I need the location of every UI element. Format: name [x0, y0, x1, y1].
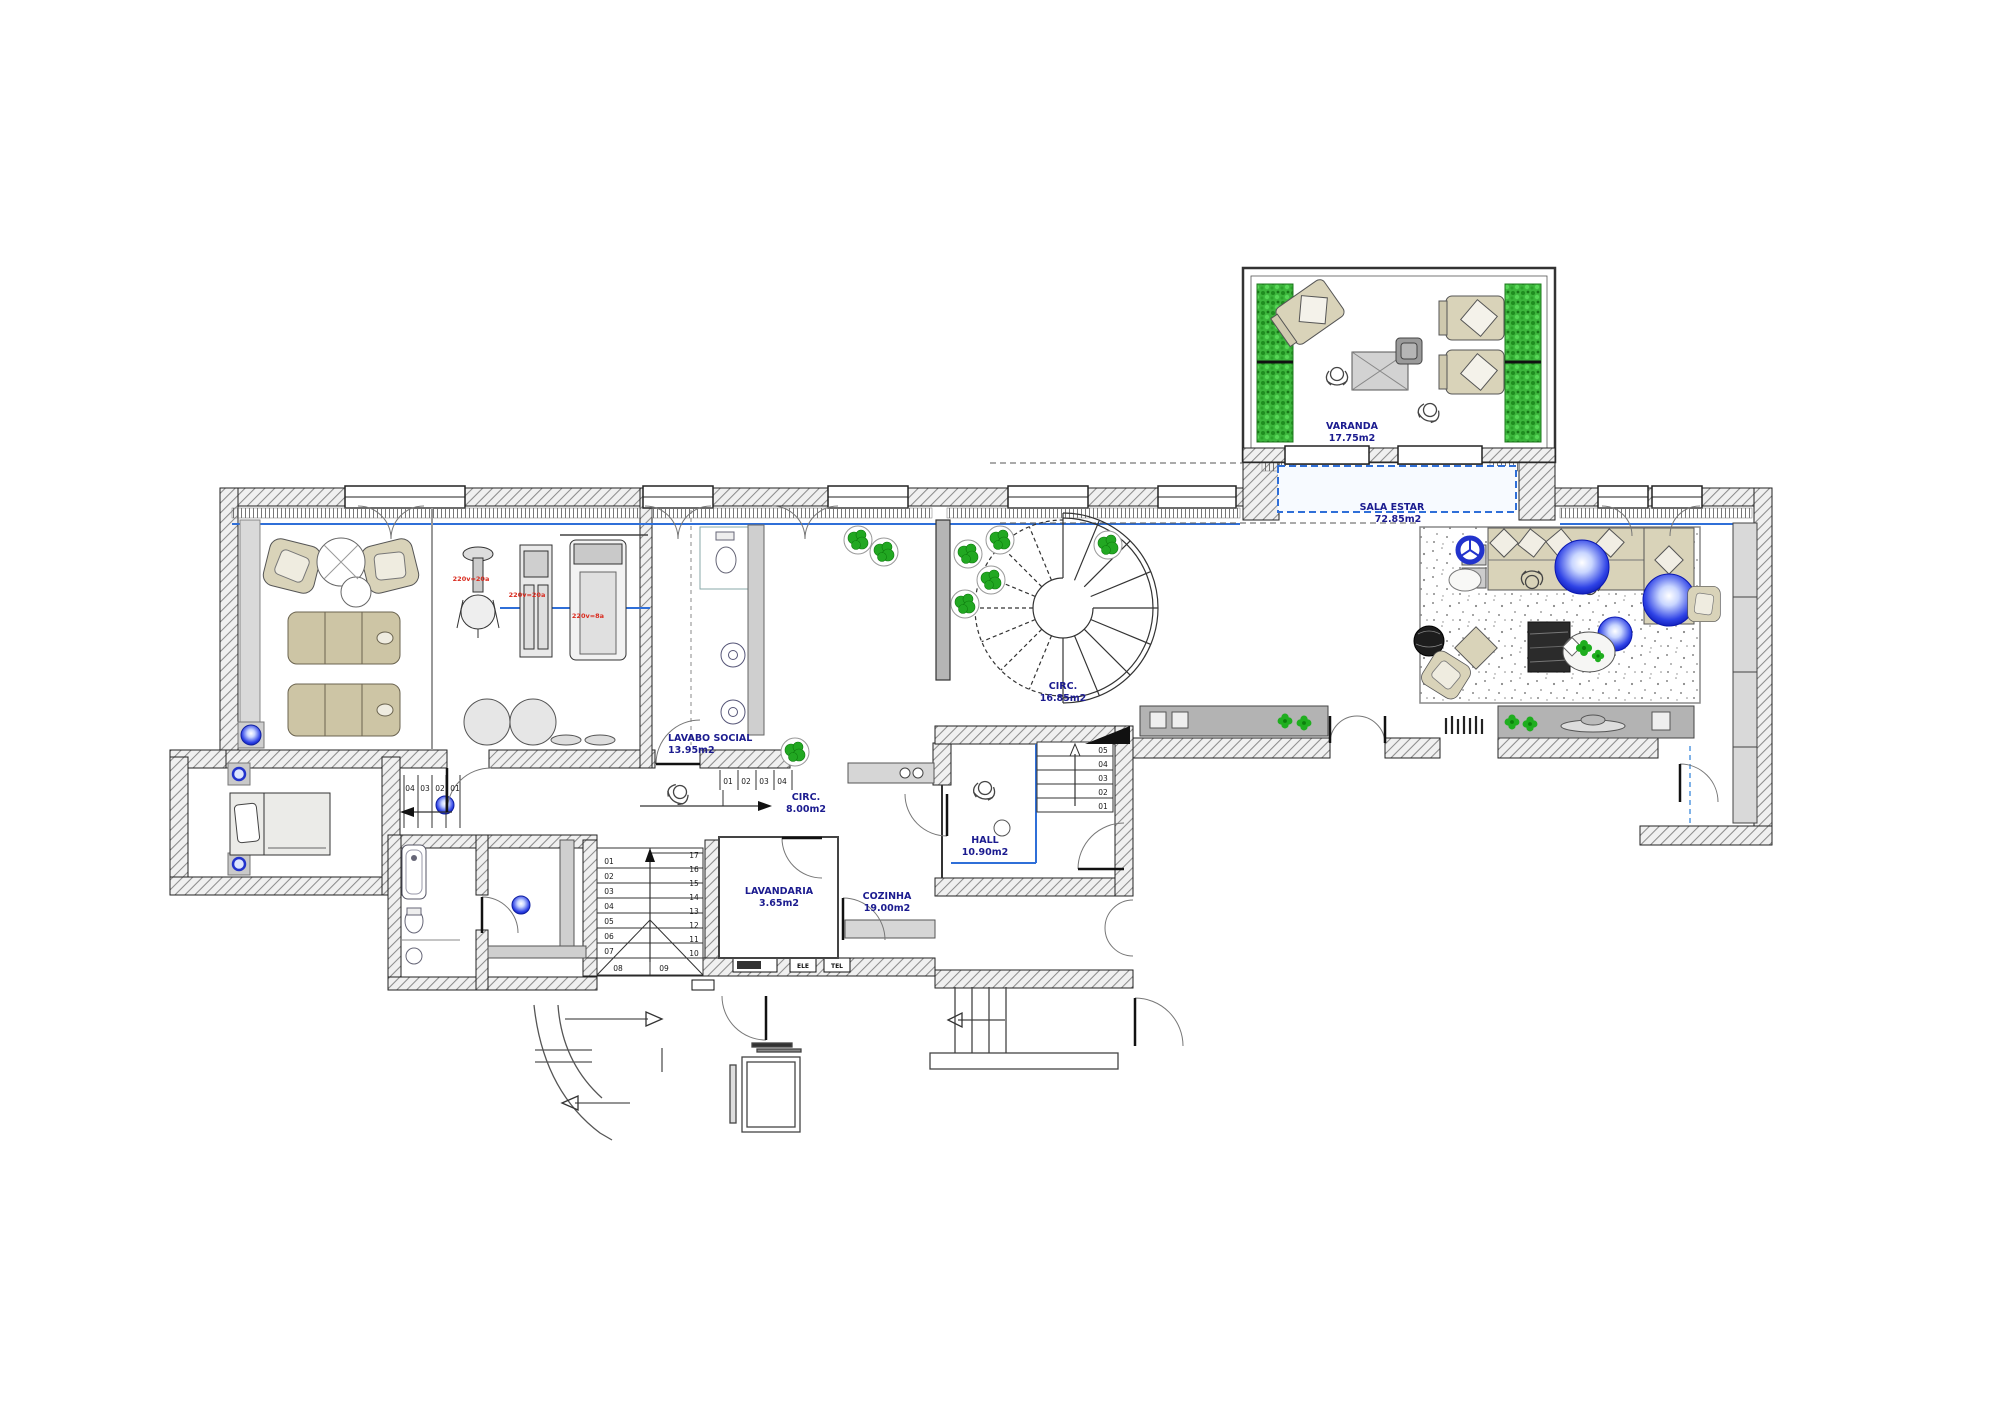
lavabo-social	[691, 510, 764, 745]
floor-plan-canvas: VARANDA 17.75m2 SALA ESTAR 72.85m2 LAVAB…	[0, 0, 2000, 1414]
label-treadmill-power: 220v=8a	[572, 612, 604, 620]
round-tables	[317, 538, 371, 607]
label-varanda-area: 17.75m2	[1329, 433, 1376, 444]
sink-icon	[721, 700, 745, 724]
stair-num: 02	[604, 872, 614, 881]
label-lavabo-area: 13.95m2	[668, 745, 715, 756]
stair-num: 07	[604, 947, 614, 956]
stair-num: 02	[1098, 788, 1108, 797]
entry-cabinet	[730, 1043, 801, 1132]
label-circ-escada-area: 16.85m2	[1040, 693, 1087, 704]
label-circ-escada: CIRC.	[1049, 681, 1077, 692]
massage-table	[288, 684, 400, 736]
stair-num: 01	[604, 857, 614, 866]
dumbbell-rack	[551, 735, 615, 745]
corridor-steps	[640, 770, 792, 811]
stair-num: 04	[604, 902, 614, 911]
blue-sphere-lamp	[241, 725, 261, 745]
toilet-icon	[405, 908, 423, 933]
exterior-features	[534, 987, 1118, 1140]
closet-area	[436, 796, 586, 958]
utility-box-label: ELE	[797, 963, 809, 970]
stair-num: 03	[1098, 774, 1108, 783]
stair-num: 12	[689, 921, 699, 930]
weight-station	[520, 545, 552, 657]
label-sala-estar: SALA ESTAR	[1360, 502, 1425, 513]
stair-num: 13	[689, 907, 699, 916]
utility-box-label: TEL	[831, 963, 843, 970]
massage-table	[288, 612, 400, 664]
label-hall: HALL	[971, 835, 998, 846]
massage-room	[238, 508, 432, 750]
label-cozinha-area: 19.00m2	[864, 903, 911, 914]
veranda-lounger-2	[1439, 296, 1504, 340]
stair-num: 03	[604, 887, 614, 896]
label-cozinha: COZINHA	[863, 891, 912, 902]
label-hall-area: 10.90m2	[962, 847, 1009, 858]
bedroom	[228, 763, 330, 875]
sink-icon	[721, 643, 745, 667]
veranda-lounger-3	[1439, 350, 1504, 394]
label-bike-power: 220v=20a	[453, 575, 490, 583]
stair-num: 03	[759, 777, 769, 786]
gym	[457, 535, 648, 745]
single-bed	[230, 793, 330, 855]
stair-num: 15	[689, 879, 699, 888]
ceiling-fan	[1458, 538, 1482, 562]
bathroom	[402, 845, 460, 964]
stair-num: 01	[723, 777, 733, 786]
stair-num: 08	[613, 964, 623, 973]
label-circ-corredor-area: 8.00m2	[786, 804, 826, 815]
stair-num: 10	[689, 949, 699, 958]
plant-table	[1563, 632, 1615, 672]
treadmill	[570, 540, 626, 660]
ramp-arrow	[646, 1012, 662, 1026]
exercise-bike	[457, 547, 499, 638]
stair-wall	[936, 520, 950, 680]
stair-num: 17	[689, 851, 699, 860]
stair-num: 03	[420, 784, 430, 793]
gym-ball	[510, 699, 556, 745]
stair-num: 02	[435, 784, 445, 793]
stair-num: 16	[689, 865, 699, 874]
person-icon	[972, 779, 997, 801]
armchair	[1688, 586, 1721, 621]
stair-num: 14	[689, 893, 699, 902]
toilet-icon	[716, 547, 736, 573]
label-circ-corredor: CIRC.	[792, 792, 820, 803]
blue-sphere	[1555, 540, 1609, 594]
stair-num: 06	[604, 932, 614, 941]
stair-num: 05	[604, 917, 614, 926]
side-table	[1449, 569, 1481, 591]
veranda	[1243, 268, 1555, 464]
stair-num: 05	[1098, 746, 1108, 755]
label-varanda: VARANDA	[1326, 421, 1379, 432]
sala-estar	[1140, 523, 1757, 824]
label-station-power: 220v=20a	[509, 591, 546, 599]
wardrobe	[240, 520, 260, 744]
floor-plan-drawing: VARANDA 17.75m2 SALA ESTAR 72.85m2 LAVAB…	[0, 0, 2000, 1414]
stair-num: 01	[450, 784, 460, 793]
stair-num: 04	[405, 784, 415, 793]
blue-sphere-lamp	[512, 896, 530, 914]
stair-num: 04	[1098, 760, 1108, 769]
label-sala-estar-area: 72.85m2	[1375, 514, 1422, 525]
label-lavandaria: LAVANDARIA	[745, 886, 814, 897]
ring-lamp	[233, 858, 245, 870]
blue-sphere-lamp	[436, 796, 454, 814]
stair-numbers: 01 02 03 04 05 06 07 17 16 15 14 13 12 1…	[405, 746, 1108, 973]
stair-num: 02	[741, 777, 751, 786]
sideboard-left	[1140, 706, 1328, 736]
stair-num: 01	[1098, 802, 1108, 811]
sink-icon	[406, 948, 422, 964]
stair-num: 04	[777, 777, 787, 786]
label-lavandaria-area: 3.65m2	[759, 898, 799, 909]
stool	[994, 820, 1010, 836]
stair-num: 09	[659, 964, 669, 973]
media-cabinet	[1733, 523, 1757, 823]
stair-num: 11	[689, 935, 699, 944]
armchair	[261, 536, 323, 595]
partition-wall	[748, 525, 764, 735]
gym-ball	[464, 699, 510, 745]
sideboard-right	[1498, 706, 1694, 738]
person-icon	[665, 780, 692, 807]
window-sill-books	[1446, 716, 1482, 734]
label-lavabo: LAVABO SOCIAL	[668, 733, 752, 744]
ring-lamp	[233, 768, 245, 780]
blue-sphere	[1643, 574, 1695, 626]
exterior-stair-right	[930, 987, 1118, 1069]
